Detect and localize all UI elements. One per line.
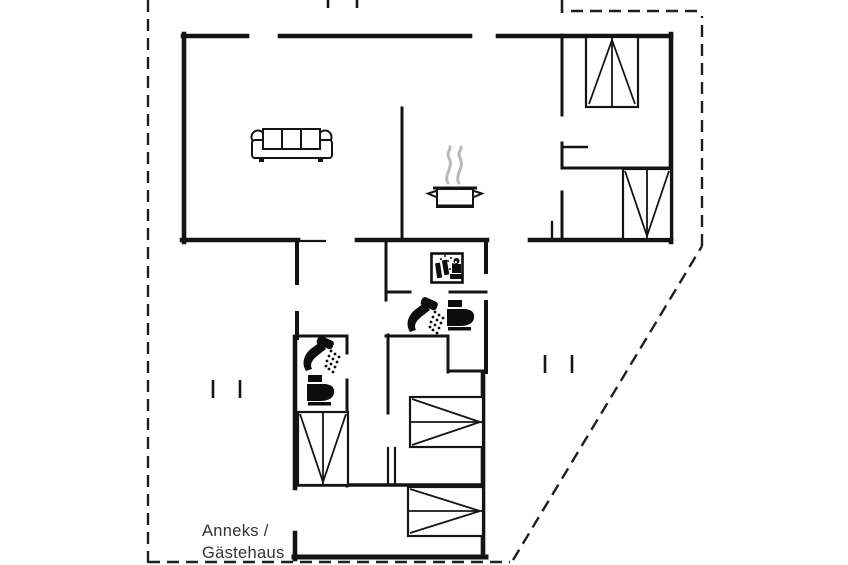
opening-tick-marks — [213, 0, 572, 398]
bunk-bed-icon-bottom — [408, 487, 483, 536]
bunk-bed-icon-middle — [410, 397, 483, 447]
annex-label-line1: Anneks / — [202, 522, 269, 540]
bed-icon-right-bedroom — [623, 169, 671, 239]
steam-icon — [447, 147, 462, 183]
annex-label-line2: Gästehaus — [202, 544, 285, 562]
cooking-pot-icon — [428, 188, 482, 207]
floor-plan-canvas: Anneks / Gästehaus — [0, 0, 848, 565]
sofa-icon — [252, 129, 333, 162]
bed-icon-annex — [298, 412, 348, 485]
toilet-icon-lower — [307, 375, 334, 406]
shower-icon-lower — [304, 335, 341, 373]
floor-plan: Anneks / Gästehaus — [0, 0, 848, 565]
toilet-icon-upper — [447, 300, 474, 331]
washing-machine-icon — [432, 254, 463, 283]
bed-icon-top-right-bedroom — [586, 37, 638, 107]
shower-icon-upper — [408, 296, 445, 334]
